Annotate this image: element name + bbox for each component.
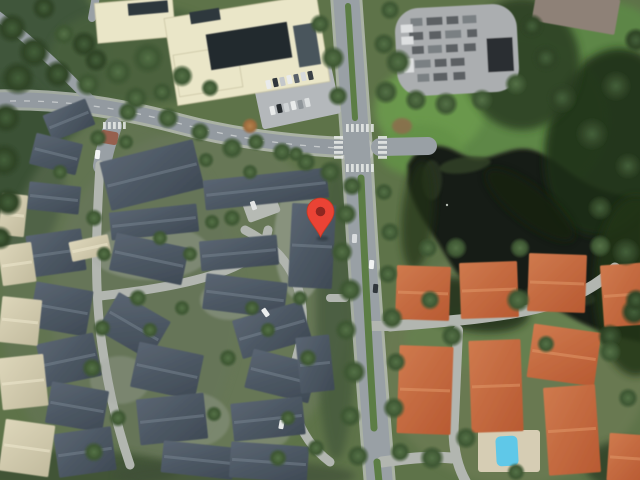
map-canvas[interactable]: [0, 0, 640, 480]
location-pin-center: [316, 207, 326, 217]
satellite-map[interactable]: [0, 0, 640, 480]
